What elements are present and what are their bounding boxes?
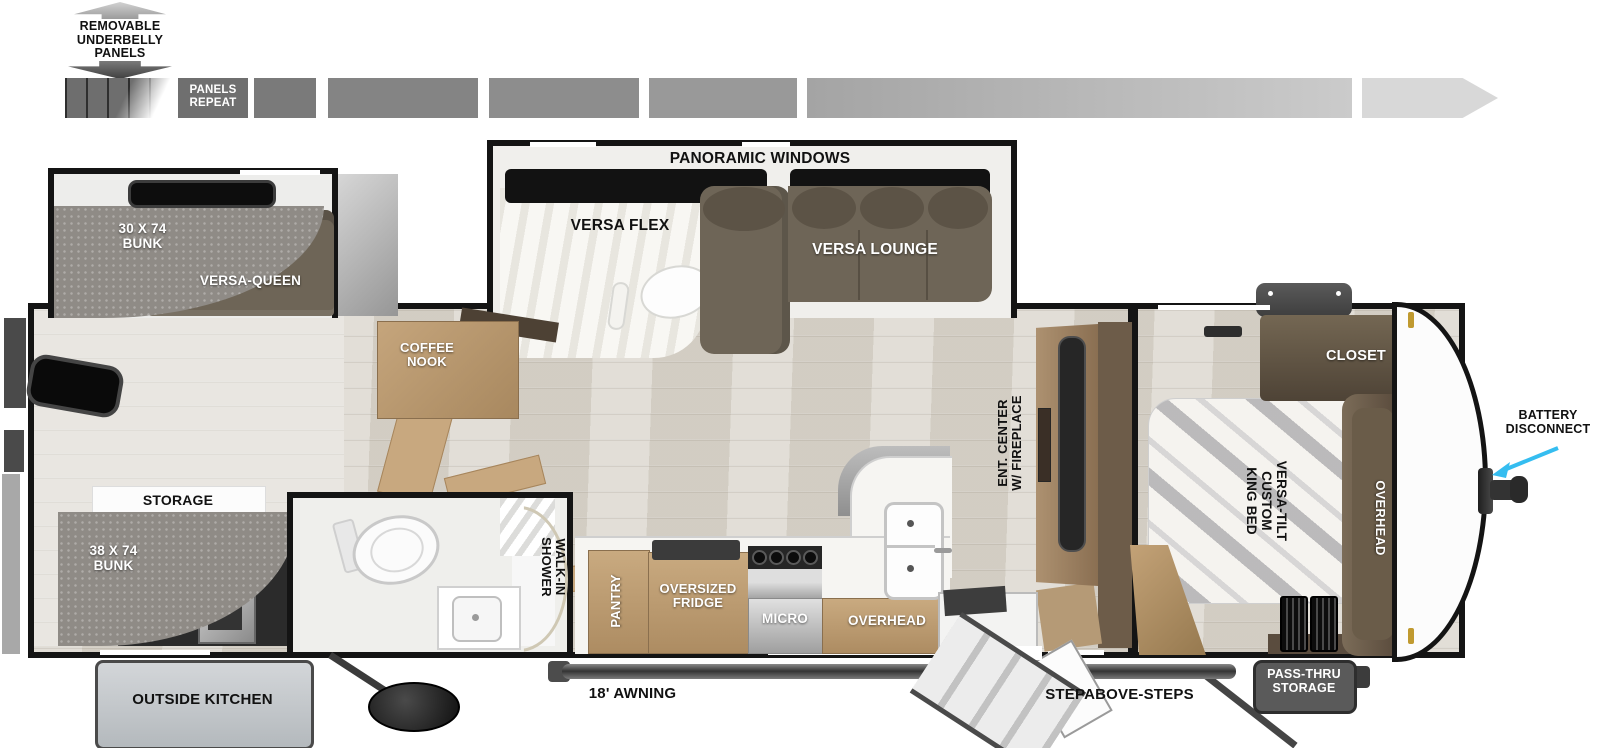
entry-mat (943, 586, 1007, 616)
coffee-nook-cabinet (377, 321, 519, 419)
coffee-nook-label: COFFEE NOOK (383, 341, 471, 370)
underbelly-panel-textured (65, 78, 171, 118)
walk-in-shower-label: WALK-IN SHOWER (533, 511, 567, 623)
rear-shell-tab (4, 318, 26, 408)
slideout-shell (336, 174, 398, 316)
awning-bar (562, 664, 1236, 679)
down-arrow-icon (68, 61, 172, 79)
roof-accessory-screw (1336, 291, 1341, 296)
awning-label: 18' AWNING (570, 686, 695, 703)
micro-label: MICRO (748, 612, 822, 627)
stove-burner (786, 550, 801, 565)
oversized-fridge-label: OVERSIZED FRIDGE (648, 582, 748, 611)
marker-light (1408, 312, 1414, 328)
versa-queen-label: VERSA-QUEEN (178, 274, 323, 289)
underbelly-panel (254, 78, 316, 118)
ent-center-back-cabinet (1098, 322, 1132, 648)
wall-window-dash (742, 142, 790, 147)
outside-kitchen-label: OUTSIDE KITCHEN (100, 692, 305, 709)
battery-disconnect-label: BATTERY DISCONNECT (1496, 409, 1600, 437)
kitchen-sink-divider (887, 545, 935, 548)
rear-shell-tab (4, 430, 24, 472)
underbelly-note: REMOVABLE UNDERBELLY PANELS (50, 20, 190, 61)
stabilizer-jack-foot (368, 682, 460, 732)
panels-repeat-label: PANELS REPEAT (180, 84, 246, 109)
sink-drain (907, 565, 914, 572)
sink-drain (907, 520, 914, 527)
sink-drain (472, 614, 479, 621)
bedroom-wall-vent (1204, 326, 1242, 337)
floor-register (1310, 596, 1338, 652)
rear-shell-tab (2, 474, 20, 654)
underbelly-panel (328, 78, 478, 118)
floor-register (1280, 596, 1308, 652)
bunk-38x74-label: 38 X 74 BUNK (66, 544, 161, 574)
sofa-back-cushion (860, 187, 924, 229)
front-cap (1392, 302, 1488, 662)
versa-flex-label: VERSA FLEX (555, 217, 685, 234)
sofa-back-cushion (792, 187, 856, 229)
marker-light (1408, 628, 1414, 644)
floor-plan-canvas: REMOVABLE UNDERBELLY PANELS PANELS REPEA… (0, 0, 1600, 748)
kitchen-faucet (934, 548, 952, 553)
underbelly-panel (807, 78, 1352, 118)
underbelly-panel (489, 78, 639, 118)
sofa-back-cushion (928, 187, 988, 229)
stepabove-steps-label: STEPABOVE-STEPS (1032, 687, 1207, 704)
king-bed-label: VERSA-TILT CUSTOM KING BED (1232, 441, 1288, 561)
overhead-kitchen-label: OVERHEAD (824, 614, 950, 629)
wall-window-dash (100, 650, 210, 655)
flow-arrow-icon (1362, 78, 1498, 118)
overhead-bedroom-label: OVERHEAD (1369, 470, 1387, 566)
storage-label: STORAGE (128, 493, 228, 508)
roof-accessory-box (1256, 283, 1352, 317)
stove-burner (769, 550, 784, 565)
bunk-30x74-label: 30 X 74 BUNK (90, 222, 195, 252)
fireplace (1038, 408, 1051, 482)
tv (1058, 336, 1086, 552)
stove-burner (803, 550, 818, 565)
roof-accessory-screw (1268, 291, 1273, 296)
pantry-label: PANTRY (609, 561, 627, 641)
wall-window-dash (1158, 305, 1270, 310)
bunk-window (128, 180, 276, 208)
panoramic-windows-label: PANORAMIC WINDOWS (600, 150, 920, 167)
wall-window-dash (240, 170, 320, 175)
stove-burner (752, 550, 767, 565)
up-arrow-icon (74, 2, 166, 19)
pass-thru-storage-label: PASS-THRU STORAGE (1255, 668, 1353, 696)
wall-window-dash (530, 142, 596, 147)
underbelly-panel (649, 78, 797, 118)
fridge-cooktop-cover (652, 540, 740, 560)
ent-center-label: ENT. CENTER W/ FIREPLACE (996, 377, 1030, 509)
versa-lounge-label: VERSA LOUNGE (790, 241, 960, 258)
pointer-arrow-icon (1488, 440, 1566, 482)
closet-label: CLOSET (1308, 349, 1404, 365)
sofa-back-cushion (703, 187, 785, 231)
